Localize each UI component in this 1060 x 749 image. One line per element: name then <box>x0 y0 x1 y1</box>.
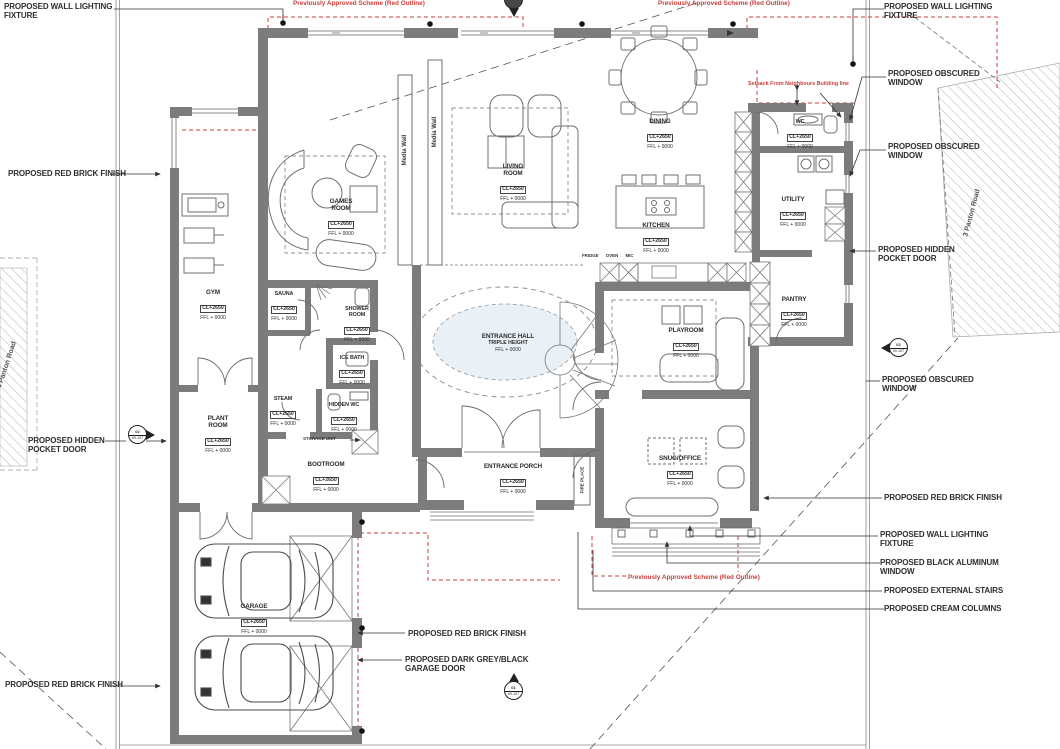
window-lines <box>170 31 849 523</box>
red-note-approved-scheme-top-left: Previously Approved Scheme (Red Outline) <box>293 0 425 7</box>
room-label-steam: STEAMCL+2650FFL + 0000 <box>261 396 305 427</box>
callout-garage-door: PROPOSED DARK GREY/BLACK GARAGE DOOR <box>405 655 555 674</box>
room-label-gym: GYMCL+2650FFL + 0000 <box>186 289 240 321</box>
storage-unit-label: STORAGE UNIT <box>303 436 336 441</box>
callout-cream-columns: PROPOSED CREAM COLUMNS <box>884 604 1060 613</box>
media-wall-label-2: Media Wall <box>432 117 438 148</box>
room-label-shower-room: SHOWER ROOMCL+2650FFL + 0000 <box>337 306 377 344</box>
red-note-setback: Setback From Neighbours Building line <box>748 81 849 87</box>
callout-obscured-window-3: PROPOSED OBSCURED WINDOW <box>882 375 982 394</box>
callout-red-brick-bottom-mid: PROPOSED RED BRICK FINISH <box>408 629 628 638</box>
room-label-utility: UTILITYCL+2650FFL + 0000 <box>771 196 815 228</box>
room-label-pantry: PANTRYCL+2650FFL + 0000 <box>772 296 816 328</box>
media-wall-label-1: Media Wall <box>402 135 408 166</box>
fire-place-label: FIRE PLACE <box>580 467 585 494</box>
room-label-living-room: LIVING ROOMCL+2650FFL + 0000 <box>493 163 533 203</box>
room-label-snug-office: SNUG/OFFICECL+2650FFL + 0000 <box>645 455 715 487</box>
room-label-wc: WCCL+2650FFL + 0000 <box>780 119 820 150</box>
kitchen-counter <box>420 263 708 282</box>
callout-wall-lighting-right: PROPOSED WALL LIGHTING FIXTURE <box>880 530 992 549</box>
callout-red-brick-right: PROPOSED RED BRICK FINISH <box>884 493 1060 502</box>
section-marker-right: 02 00-107 <box>889 338 908 357</box>
callout-wall-lighting-top-left: PROPOSED WALL LIGHTING FIXTURE <box>4 2 116 21</box>
callout-wall-lighting-top-right: PROPOSED WALL LIGHTING FIXTURE <box>884 2 1004 21</box>
red-note-approved-scheme-bottom: Previously Approved Scheme (Red Outline) <box>628 574 760 581</box>
section-marker-arrow <box>509 673 519 682</box>
room-label-entrance-porch: ENTRANCE PORCHCL+2650FFL + 0000 <box>473 463 553 495</box>
room-label-ice-bath: ICE BATHCL+2650FFL + 0000 <box>327 355 377 386</box>
room-label-bootroom: BOOTROOMCL+2650FFL + 0000 <box>296 461 356 493</box>
callout-hidden-pocket-door-right: PROPOSED HIDDEN POCKET DOOR <box>878 245 986 264</box>
callout-obscured-window-1: PROPOSED OBSCURED WINDOW <box>888 69 988 88</box>
floor-plan-canvas: PROPOSED WALL LIGHTING FIXTURE PROPOSED … <box>0 0 1060 749</box>
room-label-games-room: GAMES ROOMCL+2650FFL + 0000 <box>320 198 362 238</box>
room-label-sauna: SAUNACL+2650FFL + 0000 <box>262 291 306 322</box>
appliance-row-label: FRIDGE OVEN MIC <box>582 253 634 258</box>
room-label-dining: DININGCL+2650FFL + 0000 <box>635 118 685 150</box>
red-note-approved-scheme-top-right: Previously Approved Scheme (Red Outline) <box>658 0 790 7</box>
room-label-plant-room: PLANT ROOMCL+2650FFL + 0000 <box>198 415 238 455</box>
section-marker-arrow <box>509 8 519 17</box>
section-marker-arrow <box>146 430 155 440</box>
site-hatch-right <box>938 63 1060 337</box>
room-label-playroom: PLAYROOMCL+2650FFL + 0000 <box>656 327 716 359</box>
section-marker-arrow <box>881 343 890 353</box>
callout-black-aluminum-window: PROPOSED BLACK ALUMINUM WINDOW <box>880 558 1010 577</box>
callout-red-brick-bottom-left: PROPOSED RED BRICK FINISH <box>5 680 205 689</box>
room-label-hidden-wc: HIDDEN WCCL+2650FFL + 0000 <box>317 402 371 433</box>
room-label-entrance-hall: ENTRANCE HALLTRIPLE HEIGHTFFL + 0000 <box>463 333 553 354</box>
room-label-garage: GARAGECL+2650FFL + 0000 <box>226 603 282 635</box>
room-label-kitchen: KITCHENCL+2650FFL + 0000 <box>631 222 681 254</box>
callout-red-brick-left: PROPOSED RED BRICK FINISH <box>8 169 208 178</box>
callout-hidden-pocket-door-left: PROPOSED HIDDEN POCKET DOOR <box>28 436 128 455</box>
section-marker-left: 02 00-107 <box>128 425 147 444</box>
callout-external-stairs: PROPOSED EXTERNAL STAIRS <box>884 586 1060 595</box>
section-marker-bottom: 01 00-107 <box>504 681 523 700</box>
callout-obscured-window-2: PROPOSED OBSCURED WINDOW <box>888 142 988 161</box>
